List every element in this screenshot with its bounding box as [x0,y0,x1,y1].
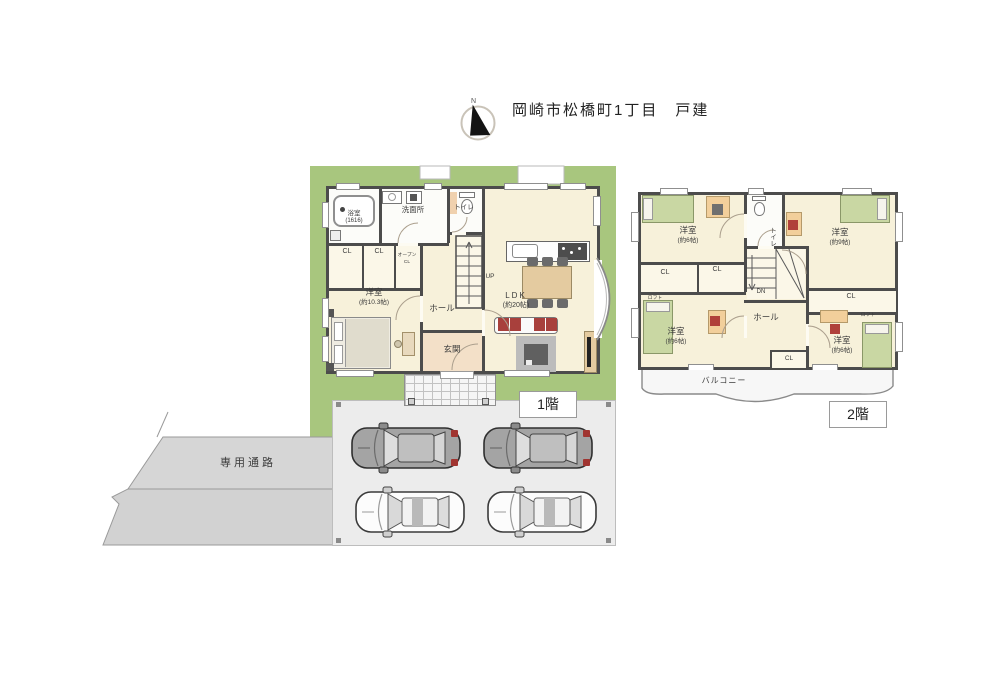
label-closet: CL [332,248,362,256]
pillow [334,322,343,341]
label-loft: ロフト [857,313,879,318]
parking-post [606,402,611,407]
parking-post [336,402,341,407]
balcony-door [812,364,838,371]
nightstand [326,363,334,371]
balcony-door [688,364,714,371]
wall [394,245,396,288]
label-toilet-f1: トイレ [447,204,481,211]
label-bath-size: (1616) [330,218,378,225]
label-open-closet: CL [395,260,419,265]
sofa-cushion [534,318,545,331]
washbasin-bowl [388,193,396,201]
chair-f2-se [830,324,840,334]
pillow [643,198,653,220]
window [504,183,548,190]
label-bath: 浴室 [330,210,378,217]
floor1-tag: 1階 [519,391,577,418]
label-closet: CL [836,293,866,301]
label-bedroom: 洋室 [336,288,412,298]
balcony [642,370,893,402]
page-title: 岡崎市松橋町1丁目 戸建 [512,103,709,120]
window [322,336,329,362]
compass-icon: N [462,98,495,140]
label-stairs-up: UP [480,273,500,280]
label-room-nw-size: (約6帖) [658,237,718,244]
chair-f2-sw [710,316,720,326]
wall [744,192,747,292]
wall [641,292,746,295]
window [631,212,639,242]
table-item [526,360,532,365]
pillow [334,345,343,364]
door-opening [806,324,809,346]
wall [808,288,896,291]
wall [770,350,772,368]
label-loft: ロフト [644,296,666,301]
yard-notch [420,166,450,179]
window [322,298,329,328]
wall [447,189,450,243]
label-closet: CL [650,269,680,277]
dining-chair [542,257,553,266]
desk-f2-se [820,310,848,323]
label-room-se: 洋室 [818,336,866,346]
window [504,370,550,377]
label-room-ne: 洋室 [814,228,866,238]
pillow [646,302,670,312]
window [336,183,360,190]
porch-post [482,398,489,405]
window [660,188,688,195]
label-balcony: バルコニー [698,377,750,386]
label-open-closet: オープン [395,253,419,258]
window [424,183,442,190]
parking-post [336,538,341,543]
front-door-opening [440,371,474,379]
floorplan-canvas: N [0,0,1000,680]
label-room-ne-size: (約9帖) [812,239,868,246]
window [322,202,329,228]
label-room-se-size: (約6帖) [816,347,868,354]
compass-north-label: N [471,98,476,105]
wall [744,246,808,249]
label-entrance: 玄関 [434,345,470,355]
yard-notch [518,166,564,184]
wall [744,300,808,303]
label-washroom: 洗面所 [384,206,442,214]
pillow [865,324,889,334]
door-opening [452,232,466,235]
wall [770,350,808,352]
label-toilet-f2: トイレ [768,220,775,254]
label-stairs-down: DN [753,289,769,296]
label-closet: CL [364,248,394,256]
door-opening [398,243,418,246]
desk-f1 [402,332,415,356]
sofa-cushion [498,318,509,331]
label-closet: CL [775,355,803,362]
dining-chair [557,257,568,266]
chair-f2-ne [788,220,798,230]
tv [587,337,591,367]
label-bedroom-size: (約10.3帖) [334,299,414,306]
window [560,183,586,190]
burner [570,251,573,254]
burner [578,247,581,250]
label-room-sw-size: (約6帖) [650,338,702,345]
window [593,196,601,226]
laundry-drum [410,194,417,201]
floor2-tag: 2階 [829,401,887,428]
chair-f2-nw [712,204,723,215]
label-ldk: LDK [487,292,545,301]
washer [330,230,341,241]
kitchen-sink [512,244,538,258]
parking-post [606,538,611,543]
dining-chair [557,299,568,308]
sofa-cushion [510,318,521,331]
window [748,188,764,195]
passage-lower [103,489,334,545]
pillow [877,198,887,220]
window [895,212,903,242]
dining-chair [527,257,538,266]
wall [641,262,744,265]
wall [782,192,785,290]
sofa-cushion [546,318,557,331]
window [336,370,374,377]
door-opening [782,250,785,274]
stool-f1 [394,340,402,348]
window [895,322,903,352]
label-passage: 専用通路 [196,457,300,469]
wall [420,330,484,333]
open-closet-f1 [396,245,420,288]
label-hall-f1: ホール [422,304,462,314]
porch-post [408,398,415,405]
label-closet: CL [702,266,732,274]
room-toilet-f2 [746,195,782,246]
boundary-line [157,412,168,437]
parking-area [332,400,616,546]
toilet-bowl-f2 [754,202,765,216]
door-opening [482,310,485,336]
label-ldk-size: (約20帖) [485,302,547,310]
toilet-tank-f1 [459,192,475,198]
bed-f1-blanket [345,319,389,367]
label-room-nw: 洋室 [660,226,716,236]
burner [562,247,565,250]
wall [697,262,699,292]
door-opening [744,214,747,238]
label-hall-f2: ホール [746,313,786,323]
window [631,308,639,338]
wall [329,243,449,246]
label-room-sw: 洋室 [652,327,700,337]
window [842,188,872,195]
toilet-tank-f2 [752,196,766,201]
